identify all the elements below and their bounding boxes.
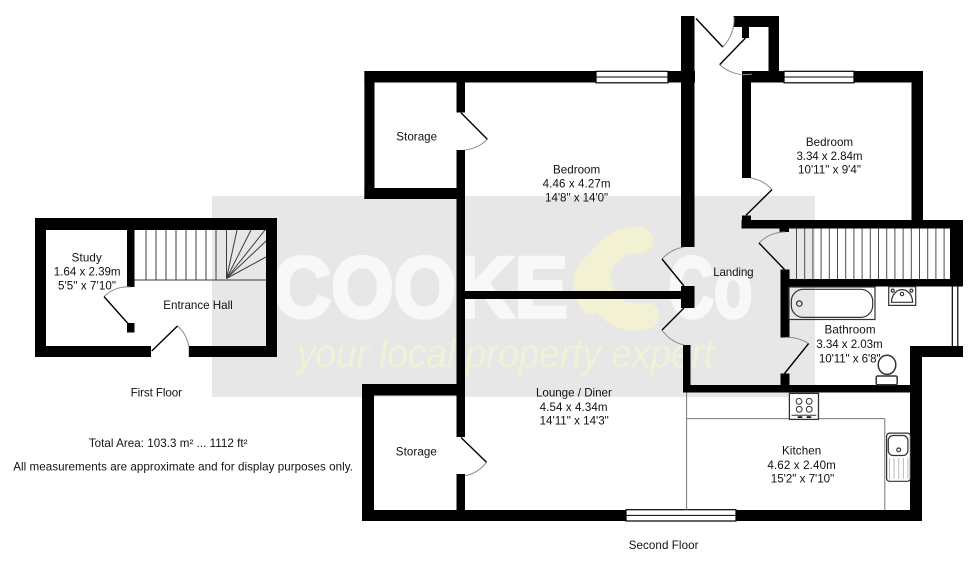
svg-text:Total Area: 103.3 m² ... 1112: Total Area: 103.3 m² ... 1112 ft²: [89, 437, 248, 450]
svg-text:1.64 x 2.39m: 1.64 x 2.39m: [54, 266, 121, 279]
svg-text:Study: Study: [72, 251, 102, 264]
svg-text:Bedroom: Bedroom: [806, 136, 853, 149]
svg-text:COOKE: COOKE: [273, 240, 568, 336]
svg-text:Storage: Storage: [396, 446, 437, 459]
svg-text:5'5" x 7'10": 5'5" x 7'10": [58, 279, 116, 292]
svg-text:3.34 x 2.84m: 3.34 x 2.84m: [796, 150, 862, 163]
svg-text:10'11" x 9'4": 10'11" x 9'4": [798, 164, 861, 177]
svg-text:Entrance Hall: Entrance Hall: [163, 299, 232, 312]
svg-text:14'11" x 14'3": 14'11" x 14'3": [540, 415, 609, 428]
svg-text:3.34 x 2.03m: 3.34 x 2.03m: [816, 338, 882, 351]
svg-text:4.62 x 2.40m: 4.62 x 2.40m: [767, 459, 836, 472]
svg-text:Landing: Landing: [713, 266, 753, 279]
svg-text:15'2" x 7'10": 15'2" x 7'10": [771, 473, 834, 486]
svg-text:All measurements are approxima: All measurements are approximate and for…: [13, 461, 353, 474]
svg-text:4.54 x 4.34m: 4.54 x 4.34m: [540, 401, 608, 414]
svg-text:Kitchen: Kitchen: [782, 445, 821, 458]
svg-text:Bathroom: Bathroom: [825, 323, 876, 336]
svg-text:your local property expert: your local property expert: [294, 332, 716, 376]
svg-text:10'11" x 6'8": 10'11" x 6'8": [819, 352, 881, 365]
svg-text:First Floor: First Floor: [131, 387, 183, 400]
svg-text:Storage: Storage: [396, 130, 437, 143]
svg-text:Second Floor: Second Floor: [629, 539, 699, 552]
svg-text:Bedroom: Bedroom: [553, 164, 600, 177]
svg-text:4.46 x 4.27m: 4.46 x 4.27m: [543, 178, 611, 191]
svg-text:14'8" x 14'0": 14'8" x 14'0": [545, 192, 608, 205]
svg-text:Lounge / Diner: Lounge / Diner: [536, 387, 612, 400]
